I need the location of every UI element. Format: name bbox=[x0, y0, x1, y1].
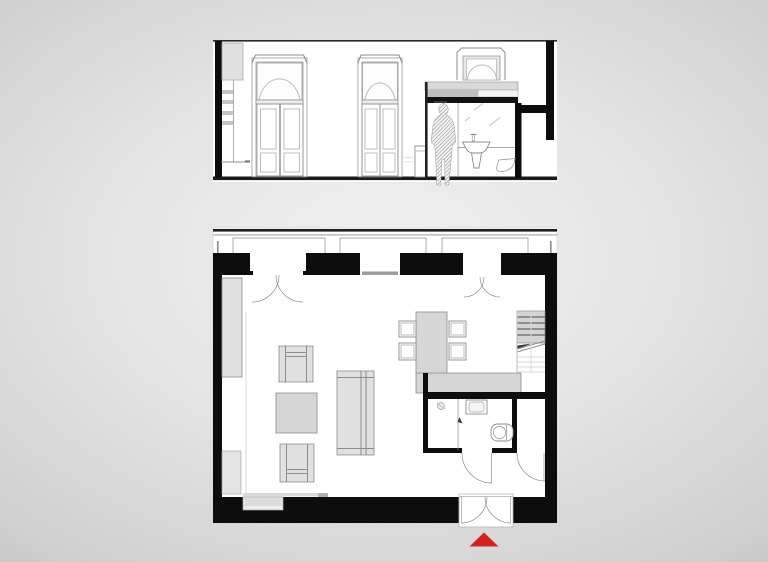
dropped-ceiling-shelf bbox=[425, 82, 518, 90]
sideboard bbox=[222, 451, 241, 494]
bathroom-wall-right bbox=[512, 392, 517, 453]
right-wall bbox=[546, 41, 554, 140]
left-wall bbox=[215, 41, 222, 177]
transom-sill bbox=[362, 100, 398, 104]
right-wall-bar bbox=[517, 105, 554, 113]
shelf-panel bbox=[222, 43, 243, 80]
left-wall bbox=[213, 253, 222, 523]
toilet-plan bbox=[491, 424, 513, 441]
ceiling-line bbox=[213, 40, 557, 42]
drawing-svg bbox=[0, 0, 768, 562]
bathroom-wall-top bbox=[423, 392, 545, 399]
shelf-bar bbox=[222, 100, 233, 104]
transom bbox=[363, 63, 398, 100]
bathroom-right-wall bbox=[515, 103, 522, 178]
armchair-bottom bbox=[280, 444, 314, 482]
hearth bbox=[245, 498, 282, 507]
wardrobe bbox=[222, 278, 242, 377]
bathroom-left-wall bbox=[425, 82, 428, 178]
entrance-double-door bbox=[459, 494, 513, 527]
armchair-top bbox=[279, 346, 313, 382]
shelf-bar bbox=[222, 121, 233, 125]
sink-plan bbox=[466, 400, 487, 414]
section-elevation bbox=[213, 40, 557, 185]
bathroom-wall-left bbox=[423, 373, 428, 453]
rail-end bbox=[245, 160, 250, 162]
architectural-drawing-sheet bbox=[0, 0, 768, 562]
chair bbox=[449, 321, 466, 337]
right-wall bbox=[545, 253, 557, 523]
french-door-elevation-2 bbox=[358, 55, 402, 177]
ceiling-band bbox=[425, 90, 478, 97]
chair bbox=[449, 343, 466, 360]
floor-plan bbox=[213, 228, 557, 527]
kitchen-counter bbox=[416, 373, 521, 393]
towel-rail bbox=[434, 101, 447, 103]
shelf-bar bbox=[222, 111, 233, 115]
entry-direction-arrow bbox=[470, 533, 499, 547]
transom bbox=[257, 63, 302, 100]
chair bbox=[399, 343, 416, 360]
dining-table bbox=[416, 312, 447, 374]
bathroom-wall-bottom bbox=[492, 448, 517, 453]
shelf-bar bbox=[222, 90, 233, 94]
transom-sill bbox=[256, 100, 303, 104]
bathroom-wall-bottom bbox=[423, 448, 462, 453]
window-sill bbox=[362, 272, 398, 275]
coffee-table bbox=[276, 393, 317, 433]
facade-line bbox=[213, 229, 557, 232]
sofa bbox=[337, 371, 374, 455]
chair bbox=[399, 321, 416, 337]
